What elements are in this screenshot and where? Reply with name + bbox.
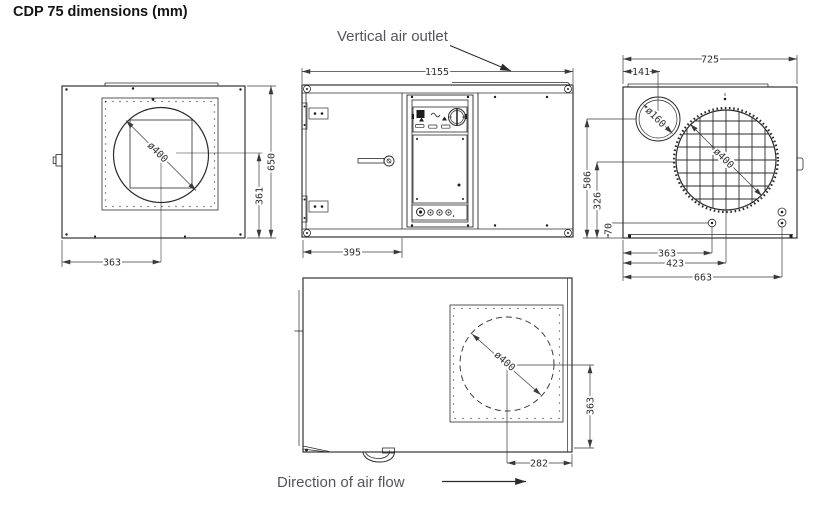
top-fan-right-dim: 282 [530,459,548,470]
end-fan-diameter-dim: ø400 [711,146,736,171]
front-width-dim: 1155 [425,67,449,78]
side-view: 650 361 363 ø400 [53,83,277,269]
end-inlet-height-dim: 506 [583,171,594,189]
cdp75-dimension-drawing: CDP 75 dimensions (mm) Vertical air outl… [0,0,840,512]
top-view-dimensions [472,334,594,467]
side-fan-bottom-dim: 361 [255,187,266,205]
side-view-dimensions [62,86,276,267]
control-dial [449,109,466,126]
side-fan-left-dim: 363 [103,258,121,269]
vertical-air-outlet-arrow [450,46,511,72]
control-panel [407,95,473,227]
display [417,110,425,118]
panel-button [442,125,451,128]
page-title: CDP 75 dimensions (mm) [13,4,188,20]
door-handle [358,156,394,166]
side-height-dim: 650 [267,153,278,171]
end-connections-offset-dim: 663 [694,273,712,284]
panel-button [429,125,438,128]
end-inlet-diameter-dim: ø160 [643,105,668,130]
side-connector [56,155,62,167]
end-view: 725 141 ø160 ø400 506 326 70 363 423 663 [583,55,804,284]
front-panel-offset-dim: 395 [343,248,361,259]
top-fan-front-dim: 363 [586,397,597,415]
direction-of-air-flow-label: Direction of air flow [277,474,405,491]
front-view-dimensions [302,68,573,258]
dimension-drawing-page: CDP 75 dimensions (mm) Vertical air outl… [0,0,840,512]
side-flange [797,158,803,170]
top-view: ø400 363 282 [295,278,597,470]
end-fan-height-dim: 326 [593,192,604,210]
end-drain-height-dim: 70 [604,223,615,235]
side-view-body [62,86,245,238]
side-fan-diameter-dim: ø400 [145,140,170,165]
front-view: 1155 395 [302,67,573,259]
indicator-icon [431,113,440,117]
top-handle [363,448,395,462]
end-fan-offset-dim: 423 [666,259,684,270]
panel-button [416,125,425,128]
end-inlet-offset-dim: 141 [632,67,650,78]
vertical-air-outlet-label: Vertical air outlet [337,28,449,45]
end-width-dim: 725 [701,55,719,66]
